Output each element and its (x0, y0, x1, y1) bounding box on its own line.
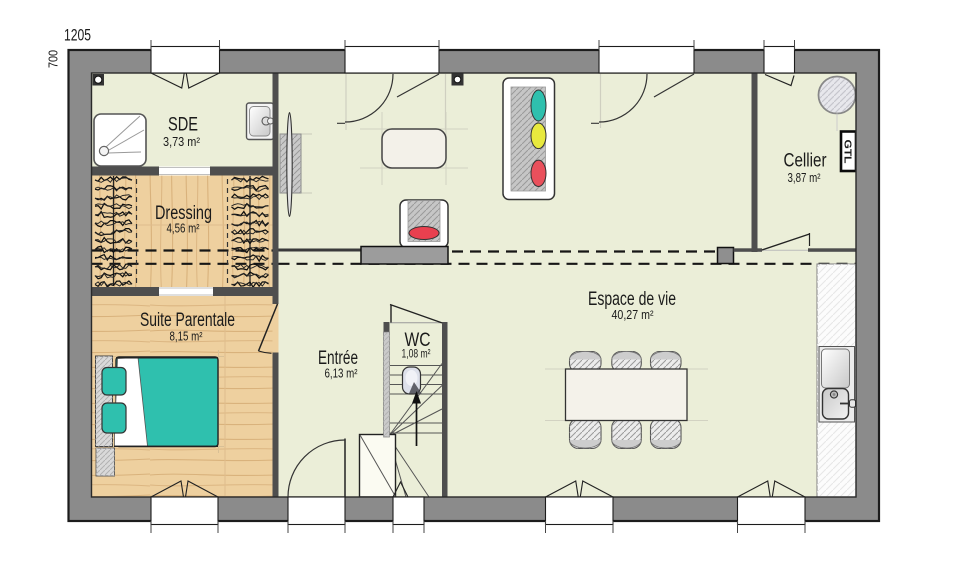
svg-text:Cellier: Cellier (784, 151, 828, 172)
svg-text:GTL: GTL (842, 140, 853, 164)
svg-text:3,73 m²: 3,73 m² (163, 134, 201, 149)
svg-text:SDE: SDE (168, 115, 198, 136)
svg-text:40,27 m²: 40,27 m² (612, 307, 655, 322)
svg-text:6,13 m²: 6,13 m² (325, 366, 359, 381)
svg-text:4,56 m²: 4,56 m² (167, 221, 201, 236)
svg-text:1205: 1205 (64, 27, 91, 45)
svg-text:8,15 m²: 8,15 m² (170, 329, 204, 344)
svg-text:1,08 m²: 1,08 m² (402, 347, 431, 361)
svg-text:700: 700 (47, 50, 61, 68)
svg-text:3,87 m²: 3,87 m² (788, 170, 822, 185)
